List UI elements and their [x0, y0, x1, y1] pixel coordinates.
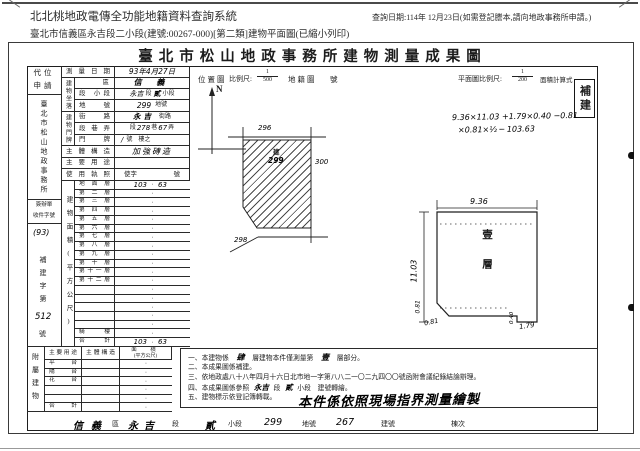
floor-label: 第十二層	[75, 277, 115, 285]
floor-row: 第三層 ·	[75, 198, 190, 207]
lane-print-2: 巷	[151, 123, 157, 134]
decimal-dot: ·	[149, 234, 156, 241]
section-label: 段 小段	[75, 89, 115, 100]
decimal-dot: ·	[149, 260, 156, 267]
floor-area-value: ·	[115, 233, 190, 241]
footer-section-hand: 永吉	[128, 417, 160, 432]
lane-print-1: 段	[130, 123, 136, 134]
floor-label	[75, 286, 115, 294]
floor-area-value: ·	[115, 207, 190, 215]
attachment-row: 花台 ·	[45, 377, 172, 386]
attachment-structure	[82, 386, 120, 394]
attachment-use: 平台	[45, 360, 82, 368]
floor-area-integer: 103	[115, 181, 149, 189]
floor-area-value: ·	[115, 277, 190, 285]
floor-area-value: ·	[115, 286, 190, 294]
attachment-area-dot: ·	[120, 386, 172, 394]
district-label: 區	[75, 78, 115, 89]
district-value: 信 義	[115, 78, 190, 89]
note-1-mid: 層建物本件僅測量第	[252, 355, 313, 362]
lane-label: 段巷弄	[75, 123, 115, 135]
floor-label: 合計	[75, 338, 115, 346]
survey-date-label: 測量日期	[62, 66, 115, 78]
street-name-hand: 永吉	[133, 112, 154, 122]
footer-subsection-suffix: 小段	[228, 419, 242, 429]
subsection-print: 小段	[163, 89, 175, 99]
floor-label: 第二層	[75, 190, 115, 198]
docket-number: (93)	[33, 228, 49, 237]
floor-label	[75, 321, 115, 329]
attachment-use: 合計	[45, 403, 82, 411]
office-name: 臺北市松山地政事務所	[39, 100, 49, 195]
door-print: 號 樓之	[126, 135, 150, 145]
address-group-label: 建物門牌	[64, 114, 73, 144]
floor-row: ·	[75, 303, 190, 312]
footer-district-suffix: 區	[112, 419, 119, 429]
lane-value: 段 278 巷 67 弄	[115, 123, 190, 135]
attachment-area-dot: ·	[120, 360, 172, 368]
floor-area-value: ·	[115, 329, 190, 337]
decimal-dot: ·	[149, 304, 156, 311]
area-calc-label: 面積計算式	[540, 74, 573, 84]
street-suffix-print: 街路	[159, 112, 171, 122]
attachment-structure	[82, 403, 120, 411]
plan-scale-denominator: 200	[518, 77, 527, 83]
attachment-use	[45, 395, 82, 403]
floor-row: 第七層 ·	[75, 233, 190, 242]
use-value	[115, 158, 190, 169]
floor-label: 第九層	[75, 251, 115, 259]
system-title: 北北桃地政電傳全功能地籍資料查詢系統	[30, 8, 237, 24]
door-value: ∕ 號 樓之	[115, 135, 190, 146]
floor-plan-drawing	[395, 192, 610, 337]
attachment-use: 陽台	[45, 369, 82, 377]
docket-label-line1: 簽辦單	[27, 200, 61, 211]
floor-area-value: ·	[115, 260, 190, 268]
attachment-row: 合計 ·	[45, 403, 172, 412]
survey-date-value: 93年4月27日	[115, 66, 190, 78]
floor-label: 地面層	[75, 181, 115, 189]
lot-label: 地號	[75, 100, 115, 112]
cadastral-map-label: 地籍圖	[288, 74, 317, 85]
attachment-group-cell: 附屬建物	[27, 347, 45, 412]
location-scale-numerator: 1	[257, 69, 278, 77]
section-print: 段	[145, 89, 151, 99]
section-value: 永吉 段 貳 小段	[115, 89, 190, 100]
rebuild-suffix: 號	[39, 329, 46, 339]
note-4-pre: 四、本成果圖係參照	[188, 385, 249, 392]
floor-label: 第八層	[75, 242, 115, 250]
floor-row: 第九層 ·	[75, 251, 190, 260]
decimal-dot: ·	[149, 251, 156, 258]
surrogate-line2: 申請	[27, 79, 61, 92]
attachment-use-header: 主要用途	[45, 347, 82, 360]
rebuild-number: 512	[35, 312, 51, 322]
note-4-hand-subsection: 貳	[282, 383, 296, 392]
floor-row: 騎樓 ·	[75, 329, 190, 338]
license-label: 使用執照	[62, 169, 115, 181]
plan-height-dim: 11.03	[410, 251, 419, 283]
south-lot-number: 298	[234, 236, 247, 244]
floor-area-value: ·	[115, 251, 190, 259]
attachment-area-header-line2: (平方公尺)	[120, 354, 171, 360]
note-4-hand-section: 永吉	[251, 383, 272, 392]
attachment-area-dot: ·	[120, 395, 172, 403]
street-label: 街路	[75, 112, 115, 123]
footer-lot-number: 299	[264, 417, 282, 428]
note-5-handwritten-remark: 本件係依照現場指界測量繪製	[298, 388, 480, 410]
decimal-dot: ·	[149, 321, 156, 328]
rebuild-stamp-text: 補建	[577, 85, 593, 113]
floor-label: 第六層	[75, 225, 115, 233]
use-label: 主要用途	[62, 158, 115, 169]
subsection-hand: 貳	[154, 89, 161, 99]
decimal-dot: ·	[149, 208, 156, 215]
floor-row: 第五層 ·	[75, 216, 190, 225]
decimal-dot: ·	[149, 295, 156, 302]
footer-unit-label: 棟次	[451, 419, 465, 429]
floor-label: 第七層	[75, 233, 115, 241]
location-scale-denominator: 500	[263, 77, 272, 83]
floor-label: 第十層	[75, 260, 115, 268]
attachment-row: ·	[45, 386, 172, 395]
door-label: 門牌	[75, 135, 115, 146]
note-4-mid: 段	[274, 385, 281, 392]
floor-label	[75, 295, 115, 303]
floor-label	[75, 303, 115, 311]
note-1-hand-measured-floor: 壹	[315, 353, 335, 362]
plan-scale-label: 平面圖比例尺:	[458, 74, 502, 84]
attachment-structure	[82, 369, 120, 377]
doc-info: 臺北市信義區永吉段二小段(建號:00267-000)[第二類]建物平面圖(已縮小…	[30, 26, 349, 40]
floor-area-decimal: 63	[156, 338, 190, 346]
punch-mark-top	[628, 152, 634, 159]
note-1-suf: 層部分。	[337, 355, 364, 362]
footer-building-number: 267	[336, 417, 354, 428]
license-prefix: 使字	[124, 169, 137, 180]
floor-label: 第四層	[75, 207, 115, 215]
floor-row: 第八層 ·	[75, 242, 190, 251]
decimal-dot: ·	[149, 190, 156, 197]
footer-subsection-hand: 貳	[205, 417, 215, 432]
license-suffix: 號	[174, 169, 181, 180]
footer-section-suffix: 段	[172, 419, 179, 429]
floor-area-value: ·	[115, 225, 190, 233]
decimal-dot: ·	[149, 181, 156, 188]
office-name-cell: 臺北市松山地政事務所	[27, 95, 62, 200]
floor-label: 第十一層	[75, 268, 115, 276]
attachment-structure	[82, 395, 120, 403]
floor-area-table: 地面層 103 · 63 第二層 · 第三層 ·	[75, 181, 190, 347]
decimal-dot: ·	[149, 339, 156, 346]
footer-district-hand: 信義	[73, 417, 109, 432]
door-hand-mark: ∕	[121, 135, 123, 145]
floor-row: 地面層 103 · 63	[75, 181, 190, 190]
docket-label-line2: 收件字號	[27, 211, 61, 222]
decimal-dot: ·	[149, 199, 156, 206]
note-3: 三、依地政處八十八年四月十六日北市地一字第八八二一〇二九四〇〇號函附會議紀錄結論…	[188, 373, 592, 383]
lane-print-3: 弄	[168, 123, 174, 134]
page-bottom-edge	[0, 448, 640, 449]
attachment-area-dot: ·	[120, 369, 172, 377]
scanned-document-page: { "header": { "system_title": "北北桃地政電傳全功…	[0, 0, 640, 451]
rebuild-number-cell: (93) 補建字第 512 號	[27, 224, 62, 347]
plan-bevel-dim-a: 0.81	[415, 294, 422, 314]
surrogate-line1: 代位	[27, 66, 61, 79]
footer-building-suffix: 建號	[381, 419, 395, 429]
floor-area-integer: 103	[115, 338, 149, 346]
floor-label	[75, 312, 115, 320]
decimal-dot: ·	[149, 269, 156, 276]
note-1-pre: 一、本建物係	[188, 355, 229, 362]
floor-area-value: ·	[115, 321, 190, 329]
plan-width-dim: 9.36	[470, 197, 488, 206]
floor-label: 騎樓	[75, 329, 115, 337]
page-top-edge	[2, 2, 638, 4]
attachment-area-dot: ·	[120, 403, 172, 411]
plan-scale-fraction: 1 200	[512, 69, 533, 84]
floor-area-value: ·	[115, 268, 190, 276]
decimal-dot: ·	[149, 330, 156, 337]
floor-row: 合計 103 · 63	[75, 338, 190, 347]
street-value: 永吉 街路	[115, 112, 190, 123]
plan-notch-depth-dim: 0.40	[509, 306, 515, 324]
floor-area-value: ·	[115, 295, 190, 303]
floor-label: 第五層	[75, 216, 115, 224]
floor-area-value: ·	[115, 216, 190, 224]
lot-number-hand: 299	[137, 100, 151, 111]
plan-floor-text: 壹層	[479, 229, 494, 291]
floor-area-value: ·	[115, 242, 190, 250]
floor-row: ·	[75, 312, 190, 321]
cadastral-number-label: 號	[330, 74, 338, 85]
attachment-structure	[82, 360, 120, 368]
floor-area-decimal: 63	[156, 181, 190, 189]
floor-area-value: ·	[115, 190, 190, 198]
floor-row: 第十一層 ·	[75, 268, 190, 277]
floor-row: 第十二層 ·	[75, 277, 190, 286]
building-area-group-label: 建物面積(平方公尺)	[63, 196, 73, 332]
attachment-area-header: 面 積 (平方公尺)	[120, 347, 172, 360]
attachment-rows: 平台 · 陽台 · 花台 · · · 合計 ·	[45, 360, 172, 412]
decimal-dot: ·	[149, 312, 156, 319]
attachment-use: 花台	[45, 377, 82, 385]
surrogate-application-cell: 代位 申請	[27, 66, 62, 95]
lot-suffix-print: 地號	[155, 100, 167, 111]
east-lot-number: 300	[315, 158, 328, 166]
note-1-hand-total-floors: 肆	[230, 353, 250, 362]
attachment-structure-header: 主體構造	[82, 347, 120, 360]
subject-lot-mark: 建	[273, 146, 280, 156]
address-group-cell: 建物門牌	[62, 112, 75, 146]
floor-label: 第三層	[75, 198, 115, 206]
attachment-area-dot: ·	[120, 377, 172, 385]
decimal-dot: ·	[149, 225, 156, 232]
attachment-use	[45, 386, 82, 394]
north-label: N	[216, 84, 223, 94]
north-lot-number: 296	[258, 124, 271, 132]
floor-area-value: ·	[115, 198, 190, 206]
decimal-dot: ·	[149, 286, 156, 293]
area-formula-line2: ×0.81×½ ─ 103.63	[458, 124, 535, 134]
attachment-row: 平台 ·	[45, 360, 172, 369]
attachment-structure	[82, 377, 120, 385]
decimal-dot: ·	[149, 216, 156, 223]
footer-lot-suffix: 地號	[302, 419, 316, 429]
floor-row: ·	[75, 286, 190, 295]
decimal-dot: ·	[149, 277, 156, 284]
site-group-cell: 建物坐落	[62, 78, 75, 112]
floor-row: 第四層 ·	[75, 207, 190, 216]
site-group-label: 建物坐落	[64, 80, 73, 110]
docket-cell: 簽辦單 收件字號	[27, 200, 62, 224]
plan-scale-numerator: 1	[512, 69, 533, 77]
location-scale-fraction: 1 500	[257, 69, 278, 84]
rebuild-label: 補建字第	[38, 256, 48, 308]
subject-lot-number: 299	[268, 156, 284, 165]
lot-value: 299 地號	[115, 100, 190, 112]
punch-mark-bottom	[628, 304, 634, 311]
section-name-hand: 永吉	[129, 89, 143, 99]
floor-row: ·	[75, 295, 190, 304]
lane-hand-2: 67	[158, 123, 167, 134]
structure-value: 加強磚造	[115, 146, 190, 158]
license-value: 使字 號	[115, 169, 190, 181]
attachment-group-label: 附屬建物	[31, 353, 41, 405]
floor-area-value: ·	[115, 303, 190, 311]
lane-hand-1: 278	[137, 123, 150, 134]
map-title: 臺北市松山地政事務所建物測量成果圖	[27, 45, 598, 66]
note-2: 二、本成果圖係補建。	[188, 363, 592, 373]
query-date: 查詢日期:114年 12月23日(如需登記謄本,請向地政事務所申請。)	[372, 12, 591, 23]
floor-area-value: ·	[115, 312, 190, 320]
floor-area-value: 103 · 63	[115, 338, 190, 346]
building-area-group-cell: 建物面積(平方公尺)	[62, 181, 75, 347]
structure-label: 主體構造	[62, 146, 115, 158]
floor-area-value: 103 · 63	[115, 181, 190, 189]
decimal-dot: ·	[149, 243, 156, 250]
